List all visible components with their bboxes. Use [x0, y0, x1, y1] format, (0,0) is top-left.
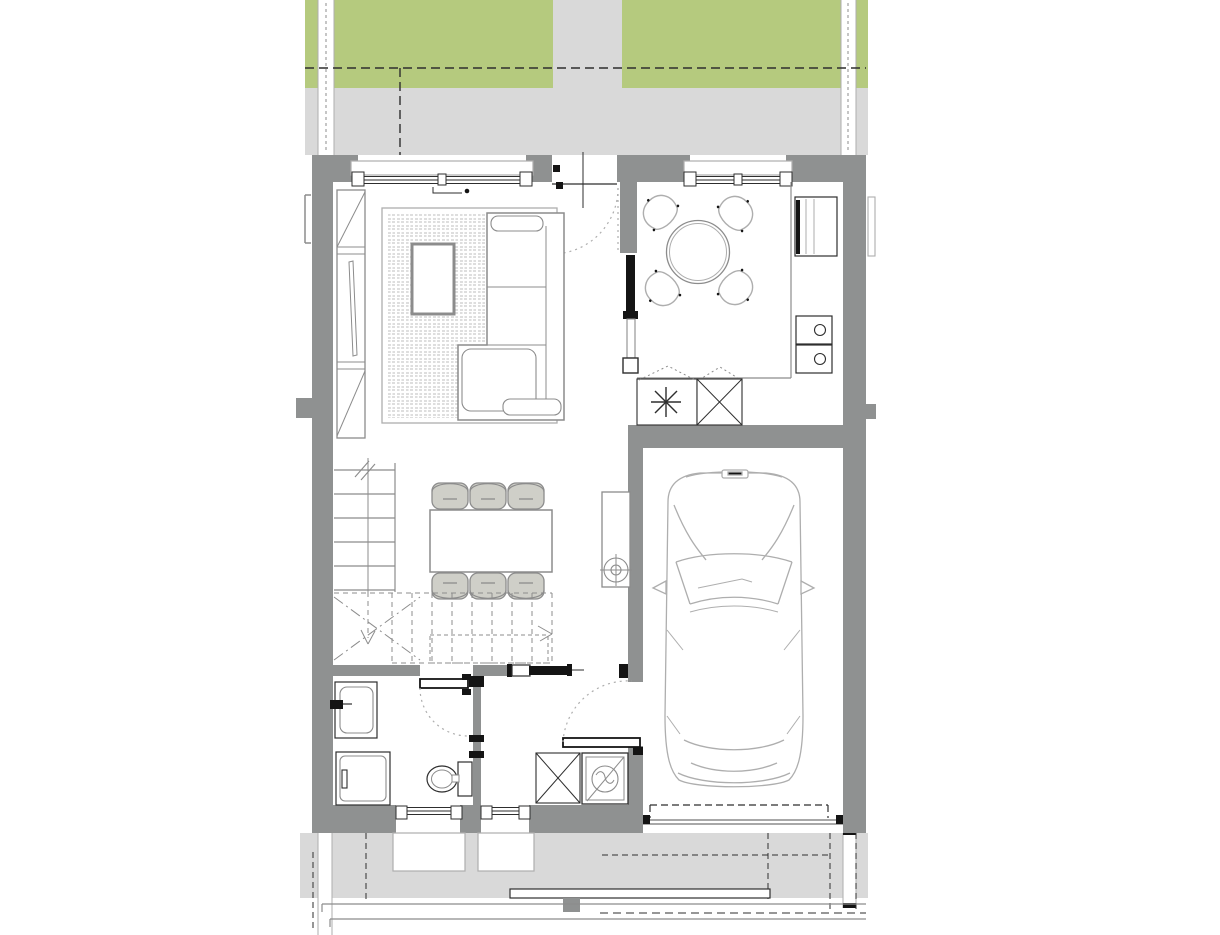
- gate-post: [563, 898, 580, 912]
- neighbor-wall-sliver: [868, 197, 875, 256]
- dining-chair: [508, 483, 544, 509]
- vestibule: [536, 753, 628, 804]
- front-driveway: [300, 833, 868, 898]
- living-kitchen-partition: [620, 182, 637, 253]
- bottom-wall-a: [333, 805, 396, 833]
- washing-machine: [582, 753, 628, 804]
- right-wall: [843, 182, 866, 833]
- utility-cabinet: [600, 492, 632, 587]
- lawn-left-strip: [305, 0, 318, 88]
- dining-chair: [432, 483, 468, 509]
- round-table: [667, 221, 730, 284]
- shower: [336, 752, 390, 805]
- downpipe-mark: [305, 195, 311, 243]
- coffee-table: [412, 244, 454, 314]
- dining-area: [430, 483, 632, 599]
- dining-chair: [470, 483, 506, 509]
- entrance-footpath: [553, 0, 622, 88]
- dining-table: [430, 510, 552, 572]
- boiler-symbol: [651, 387, 681, 417]
- dining-chair: [508, 573, 544, 599]
- street-edge-lines: [322, 904, 866, 927]
- lawn-left: [334, 0, 553, 88]
- right-wall-stub: [866, 404, 876, 419]
- bottom-wall-pier: [460, 805, 481, 833]
- duct-shaft-bath: [536, 753, 580, 803]
- fridge: [795, 197, 837, 256]
- lawn-right: [622, 0, 841, 88]
- left-wall-stub: [296, 398, 312, 418]
- hall-south-wall-b: [473, 665, 510, 676]
- washbasin: [330, 682, 377, 738]
- bottom-wall-b: [529, 805, 643, 833]
- hall-south-wall-a: [312, 665, 420, 676]
- rear-terrace: [305, 88, 868, 155]
- duct-shaft-kitchen: [697, 379, 742, 425]
- floor-plan-drawing: [0, 0, 1220, 935]
- left-wall: [312, 182, 333, 833]
- dining-chair: [470, 573, 506, 599]
- wardrobe: [337, 190, 365, 438]
- dining-chair: [432, 573, 468, 599]
- kerb-step: [510, 889, 770, 898]
- hob-unit: [796, 316, 832, 373]
- floor-plan-canvas: [0, 0, 1220, 935]
- lawn-right-strip: [856, 0, 868, 88]
- garage-north-wall: [628, 425, 843, 448]
